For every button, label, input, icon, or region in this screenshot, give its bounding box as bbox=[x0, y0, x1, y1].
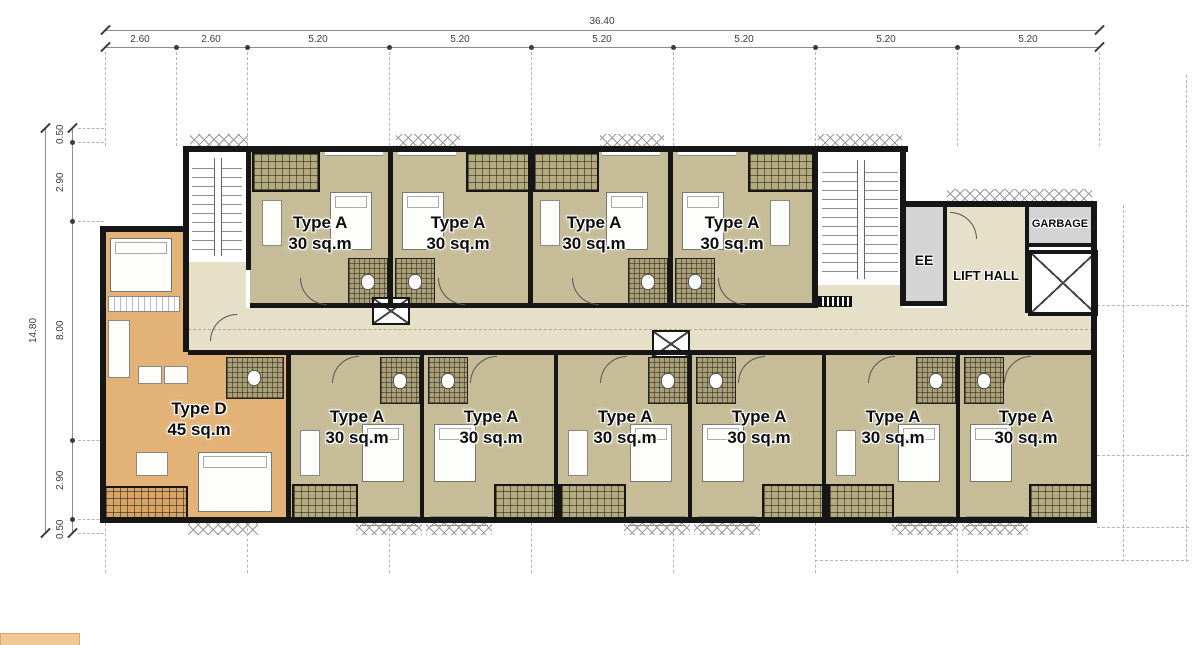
garbage-label: GARBAGE bbox=[1028, 218, 1092, 230]
bathroom bbox=[380, 357, 420, 404]
unit-type: Type A bbox=[999, 407, 1054, 426]
toilet bbox=[977, 373, 991, 389]
dimension-node bbox=[671, 45, 676, 50]
dimension-node bbox=[70, 140, 75, 145]
grid-line bbox=[815, 523, 816, 573]
unit-area: 30 sq.m bbox=[700, 234, 763, 253]
grid-line bbox=[815, 52, 816, 146]
ee-label: EE bbox=[905, 252, 943, 268]
dim-segment: 0.50 bbox=[55, 497, 67, 561]
wall bbox=[900, 301, 947, 306]
wall bbox=[388, 152, 393, 303]
wall bbox=[943, 201, 947, 305]
unit-area: 30 sq.m bbox=[459, 428, 522, 447]
grid-line bbox=[531, 523, 532, 573]
grid-line bbox=[815, 560, 1189, 561]
legend-swatch bbox=[0, 633, 80, 645]
unit-type: Type A bbox=[567, 213, 622, 232]
awning bbox=[190, 134, 248, 146]
unit-label-type-a: Type A 30 sq.m bbox=[262, 212, 378, 255]
wall bbox=[183, 146, 908, 152]
toilet bbox=[929, 373, 943, 389]
awning bbox=[947, 189, 1092, 201]
dim-segment: 5.20 bbox=[288, 34, 348, 45]
stair-rail bbox=[214, 158, 222, 256]
corridor-centerline bbox=[188, 329, 1093, 330]
wall bbox=[1025, 243, 1095, 247]
awning bbox=[600, 134, 664, 146]
balcony bbox=[466, 152, 532, 192]
unit-area: 30 sq.m bbox=[562, 234, 625, 253]
wall bbox=[554, 355, 558, 518]
grid-line bbox=[78, 221, 104, 222]
dimension-node bbox=[813, 45, 818, 50]
grid-line bbox=[673, 52, 674, 146]
dimension-line-total-width bbox=[105, 30, 1099, 31]
wall bbox=[668, 152, 673, 303]
dim-segment: 2.60 bbox=[110, 34, 170, 45]
grid-line bbox=[78, 142, 104, 143]
wall bbox=[100, 226, 106, 523]
wall bbox=[900, 201, 1097, 207]
awning bbox=[892, 523, 958, 535]
dim-segment: 5.20 bbox=[572, 34, 632, 45]
wall bbox=[420, 355, 424, 518]
unit-type: Type A bbox=[293, 213, 348, 232]
dimension-node bbox=[70, 517, 75, 522]
unit-label-type-a: Type A 30 sq.m bbox=[299, 406, 415, 449]
wall bbox=[812, 146, 818, 308]
unit-label-type-a: Type A 30 sq.m bbox=[674, 212, 790, 255]
type-d-bed bbox=[110, 238, 172, 292]
dimension-line-segments-v bbox=[72, 128, 73, 533]
dim-segment: 5.20 bbox=[998, 34, 1058, 45]
toilet bbox=[441, 373, 455, 389]
awning bbox=[188, 523, 258, 535]
toilet bbox=[688, 274, 702, 290]
dimension-total-height: 14.80 bbox=[28, 295, 40, 365]
dim-segment: 5.20 bbox=[856, 34, 916, 45]
unit-label-type-a: Type A 30 sq.m bbox=[968, 406, 1084, 449]
toilet bbox=[408, 274, 422, 290]
unit-label-type-a: Type A 30 sq.m bbox=[400, 212, 516, 255]
toilet bbox=[709, 373, 723, 389]
toilet bbox=[361, 274, 375, 290]
unit-label-type-a: Type A 30 sq.m bbox=[835, 406, 951, 449]
unit-type: Type A bbox=[705, 213, 760, 232]
unit-area: 30 sq.m bbox=[593, 428, 656, 447]
type-d-bathroom bbox=[226, 357, 284, 399]
grid-line bbox=[1099, 52, 1100, 146]
dimension-node bbox=[387, 45, 392, 50]
bathroom bbox=[696, 357, 736, 404]
unit-label-type-a: Type A 30 sq.m bbox=[567, 406, 683, 449]
unit-type: Type A bbox=[431, 213, 486, 232]
wall bbox=[528, 152, 533, 303]
floor-plan: 36.40 2.60 2.60 5.20 5.20 5.20 5.20 5.20… bbox=[0, 0, 1200, 645]
toilet bbox=[641, 274, 655, 290]
dimension-node bbox=[529, 45, 534, 50]
grid-line bbox=[957, 52, 958, 146]
unit-type: Type D bbox=[171, 399, 226, 418]
wall bbox=[822, 355, 826, 518]
awning bbox=[694, 523, 760, 535]
unit-area: 30 sq.m bbox=[288, 234, 351, 253]
unit-type: Type A bbox=[330, 407, 385, 426]
wall bbox=[688, 355, 692, 518]
bathroom bbox=[964, 357, 1004, 404]
unit-type: Type A bbox=[464, 407, 519, 426]
unit-label-type-a: Type A 30 sq.m bbox=[701, 406, 817, 449]
balcony bbox=[252, 152, 320, 192]
unit-area: 30 sq.m bbox=[861, 428, 924, 447]
wall bbox=[183, 146, 189, 352]
awning bbox=[356, 523, 422, 535]
dimension-total-width: 36.40 bbox=[572, 16, 632, 27]
unit-label-type-d: Type D 45 sq.m bbox=[134, 398, 264, 441]
lift-hall-label: LIFT HALL bbox=[942, 268, 1030, 283]
dimension-node bbox=[174, 45, 179, 50]
grid-line bbox=[1097, 527, 1189, 528]
type-d-bed bbox=[198, 452, 272, 512]
bathroom bbox=[916, 357, 956, 404]
lift-shaft bbox=[1028, 250, 1098, 316]
grid-line bbox=[78, 533, 104, 534]
kitchen-counter bbox=[108, 320, 130, 378]
grid-line bbox=[1123, 205, 1124, 562]
unit-area: 30 sq.m bbox=[325, 428, 388, 447]
vent-grill bbox=[818, 296, 852, 307]
bathroom bbox=[648, 357, 688, 404]
dim-segment: 2.90 bbox=[55, 147, 67, 217]
grid-line bbox=[1097, 305, 1189, 306]
dimension-line-total-height bbox=[45, 128, 46, 533]
dimension-node bbox=[955, 45, 960, 50]
unit-area: 30 sq.m bbox=[426, 234, 489, 253]
grid-line bbox=[105, 523, 106, 573]
dimension-node bbox=[70, 438, 75, 443]
balcony bbox=[533, 152, 599, 192]
awning bbox=[962, 523, 1028, 535]
grid-line bbox=[531, 52, 532, 146]
sofa bbox=[138, 366, 162, 384]
grid-line bbox=[176, 52, 177, 146]
dim-segment: 5.20 bbox=[430, 34, 490, 45]
wall bbox=[956, 355, 960, 518]
unit-area: 30 sq.m bbox=[727, 428, 790, 447]
grid-line bbox=[78, 128, 104, 129]
stairwell-right bbox=[818, 152, 902, 285]
grid-line bbox=[1186, 75, 1187, 562]
wall bbox=[286, 352, 291, 518]
type-d-closet bbox=[108, 296, 180, 312]
bathroom bbox=[428, 357, 468, 404]
toilet bbox=[661, 373, 675, 389]
dim-segment: 2.60 bbox=[181, 34, 241, 45]
wall bbox=[900, 146, 906, 305]
unit-label-type-a: Type A 30 sq.m bbox=[433, 406, 549, 449]
wall bbox=[246, 146, 251, 270]
grid-line bbox=[105, 52, 106, 146]
grid-line bbox=[389, 52, 390, 146]
dimension-node bbox=[245, 45, 250, 50]
wall bbox=[100, 226, 188, 232]
wall bbox=[250, 303, 815, 308]
wall bbox=[100, 517, 1097, 523]
table bbox=[136, 452, 168, 476]
dim-segment: 5.20 bbox=[714, 34, 774, 45]
sofa bbox=[164, 366, 188, 384]
bathroom bbox=[675, 258, 715, 305]
unit-label-type-a: Type A 30 sq.m bbox=[536, 212, 652, 255]
unit-area: 45 sq.m bbox=[167, 420, 230, 439]
grid-line bbox=[1097, 455, 1189, 456]
awning bbox=[396, 134, 460, 146]
stairwell-left bbox=[188, 152, 246, 262]
dim-segment: 8.00 bbox=[55, 295, 67, 365]
grid-line bbox=[247, 52, 248, 146]
unit-area: 30 sq.m bbox=[994, 428, 1057, 447]
balcony bbox=[748, 152, 816, 192]
toilet bbox=[393, 373, 407, 389]
stair-rail bbox=[857, 160, 865, 279]
stair-lobby bbox=[188, 262, 246, 308]
unit-type: Type A bbox=[598, 407, 653, 426]
awning bbox=[426, 523, 492, 535]
unit-type: Type A bbox=[866, 407, 921, 426]
dimension-node bbox=[70, 219, 75, 224]
toilet bbox=[247, 370, 261, 386]
bathroom bbox=[628, 258, 668, 305]
wall bbox=[1091, 201, 1097, 523]
awning bbox=[624, 523, 690, 535]
awning bbox=[818, 134, 902, 146]
unit-type: Type A bbox=[732, 407, 787, 426]
dimension-line-segments bbox=[105, 47, 1099, 48]
